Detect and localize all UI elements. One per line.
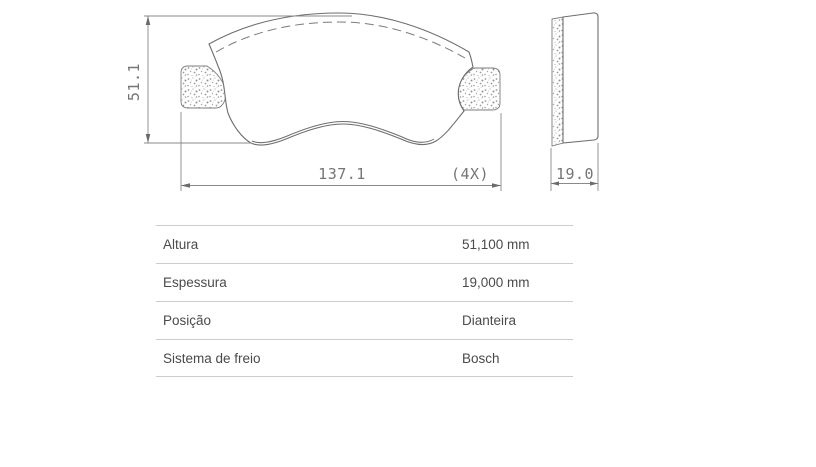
width-dimension-label: 137.1 xyxy=(318,165,366,183)
height-dimension-label: 51.1 xyxy=(125,63,143,101)
thickness-dimension-label: 19.0 xyxy=(556,165,594,183)
spec-table: Altura 51,100 mm Espessura 19,000 mm Pos… xyxy=(156,225,573,377)
pad-front-view xyxy=(181,13,500,145)
quantity-label: (4X) xyxy=(451,165,489,183)
spec-value-espessura: 19,000 mm xyxy=(462,264,530,301)
spec-value-sistema-de-freio: Bosch xyxy=(462,340,500,377)
table-row: Altura 51,100 mm xyxy=(156,225,573,263)
spec-value-posicao: Dianteira xyxy=(462,302,516,339)
side-friction-strip xyxy=(552,17,563,146)
spec-label-sistema-de-freio: Sistema de freio xyxy=(163,340,261,377)
spec-label-altura: Altura xyxy=(163,226,198,263)
table-row: Sistema de freio Bosch xyxy=(156,339,573,377)
arrowhead-left xyxy=(181,183,190,188)
table-row: Espessura 19,000 mm xyxy=(156,263,573,301)
pad-side-view xyxy=(552,13,598,146)
spec-label-espessura: Espessura xyxy=(163,264,227,301)
friction-tab-left xyxy=(181,66,226,108)
brake-pad-spec-page: 51.1 137.1 (4X) 19.0 Altura 51,100 mm xyxy=(0,0,816,467)
side-backplate xyxy=(563,13,598,143)
pad-outline xyxy=(209,13,473,145)
spec-label-posicao: Posição xyxy=(163,302,211,339)
spec-value-altura: 51,100 mm xyxy=(462,226,530,263)
arrowhead-right xyxy=(492,183,501,188)
arrowhead-up xyxy=(146,16,151,25)
table-row: Posição Dianteira xyxy=(156,301,573,339)
thickness-dimension: 19.0 xyxy=(551,143,598,191)
brake-pad-technical-drawing: 51.1 137.1 (4X) 19.0 xyxy=(0,0,816,220)
arrowhead-down xyxy=(146,134,151,143)
